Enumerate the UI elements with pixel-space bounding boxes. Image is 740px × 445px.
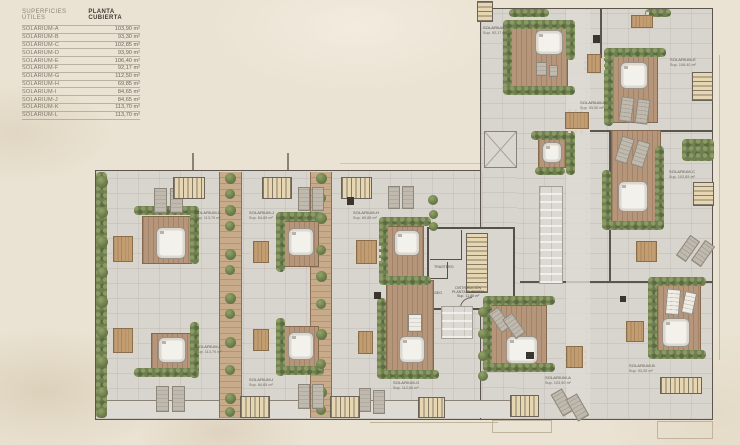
sun-lounger [359, 388, 371, 412]
legend-row: SOLARIUM-D93,90 m² [22, 48, 140, 56]
legend-row-area: 102,85 m² [115, 42, 140, 48]
unit-name: SOLARIUM-F [483, 25, 509, 30]
unit-name: SOLARIUM-C [669, 169, 695, 174]
legend-row-name: SOLARIUM-A [22, 26, 59, 32]
tree-icon [225, 173, 236, 184]
roof-vent [526, 352, 534, 359]
lower-floor-outline [657, 421, 713, 439]
hedge [566, 131, 575, 175]
lower-floor-line [370, 422, 498, 423]
stairs-icon [330, 396, 360, 418]
hedge [377, 370, 439, 379]
hedge [682, 139, 714, 161]
jacuzzi [156, 227, 186, 259]
hedge [602, 170, 611, 226]
skylight [484, 131, 517, 168]
seating-grid [441, 306, 473, 339]
sun-lounger [388, 186, 400, 209]
tree-icon [478, 371, 488, 381]
jacuzzi [158, 337, 186, 363]
tree-icon [478, 329, 488, 339]
dining-table [636, 241, 657, 262]
hedge [535, 167, 565, 175]
hedge [648, 350, 706, 359]
tree-icon [225, 365, 235, 375]
unit-area: Sup. 84,65 m² [249, 216, 274, 221]
tree-icon [316, 359, 326, 369]
seating-grid [539, 186, 563, 284]
legend-row-name: SOLARIUM-B [22, 34, 59, 40]
unit-label-solarium-d: SOLARIUM-DSup. 93,90 m² [580, 101, 606, 110]
tree-icon [97, 327, 108, 338]
dining-table [587, 54, 601, 73]
unit-name: SOLARIUM-E [670, 57, 696, 62]
jacuzzi [542, 142, 562, 163]
legend-row-area: 103,90 m² [115, 26, 140, 32]
legend: SUPERFICIES ÚTILES PLANTA CUBIERTA SOLAR… [22, 9, 140, 120]
hedge [276, 212, 285, 272]
tree-icon [225, 249, 236, 260]
wall-tick [287, 153, 289, 170]
unit-label-solarium-k: SOLARIUM-KSup. 113,70 m² [195, 211, 221, 220]
unit-area: Sup. 69,85 m² [353, 216, 379, 221]
legend-row-area: 69,85 m² [118, 81, 140, 87]
stairs-icon [660, 377, 702, 394]
unit-name: SOLARIUM-I [249, 377, 273, 382]
hedge [377, 298, 386, 378]
unit-label-solarium-j: SOLARIUM-JSup. 84,65 m² [249, 211, 274, 220]
tree-icon [478, 307, 488, 317]
unit-name: SOLARIUM-A [545, 375, 571, 380]
dining-table [113, 328, 133, 353]
hedge [566, 20, 575, 60]
tree-icon [225, 309, 235, 319]
hedge [604, 48, 666, 57]
sun-lounger [373, 390, 385, 414]
tree-icon [316, 329, 327, 340]
hedge [503, 86, 575, 95]
unit-label-solarium-c: SOLARIUM-CSup. 102,85 m² [669, 170, 695, 179]
jacuzzi [399, 336, 425, 363]
dining-table [626, 321, 644, 342]
legend-row-name: SOLARIUM-C [22, 42, 59, 48]
sun-lounger [665, 288, 681, 315]
dining-table [631, 15, 653, 28]
legend-row: SOLARIUM-E106,40 m² [22, 56, 140, 64]
tree-icon [429, 222, 438, 231]
legend-row-name: SOLARIUM-E [22, 58, 59, 64]
tree-icon [97, 387, 108, 398]
stairs-icon [173, 177, 205, 199]
floor-plan-canvas: SUPERFICIES ÚTILES PLANTA CUBIERTA SOLAR… [0, 0, 740, 445]
tree-icon [96, 236, 108, 248]
roof-vent [620, 296, 626, 302]
unit-label-solarium-h: SOLARIUM-HSup. 69,85 m² [353, 211, 379, 220]
legend-row-name: SOLARIUM-G [22, 73, 59, 79]
tree-icon [316, 245, 326, 255]
hedge [483, 363, 555, 372]
legend-row: SOLARIUM-C102,85 m² [22, 41, 140, 49]
tree-icon [478, 351, 488, 361]
jacuzzi [394, 230, 420, 256]
legend-row-name: SOLARIUM-H [22, 81, 59, 87]
tree-icon [225, 189, 235, 199]
legend-row-area: 93,90 m² [118, 50, 140, 56]
unit-area: Sup. 93,90 m² [580, 106, 606, 111]
tree-icon [316, 271, 327, 282]
hedge [503, 20, 575, 29]
tree-icon [97, 267, 108, 278]
legend-row-name: SOLARIUM-K [22, 104, 59, 110]
unit-label-solarium-i: SOLARIUM-ISup. 84,65 m² [249, 378, 273, 387]
legend-row: SOLARIUM-K113,70 m² [22, 103, 140, 111]
legend-title-right: PLANTA CUBIERTA [88, 9, 140, 21]
legend-row-area: 84,65 m² [118, 89, 140, 95]
unit-label-solarium-f: SOLARIUM-FSup. 92,17 m² [483, 26, 509, 35]
hedge [483, 296, 555, 305]
trastero-room [430, 230, 462, 260]
dining-table [253, 241, 269, 263]
unit-area: Sup. 93,30 m² [629, 369, 655, 374]
jacuzzi [506, 336, 538, 364]
unit-area: Sup. 112,50 m² [393, 386, 419, 391]
unit-name: SOLARIUM-B [629, 363, 655, 368]
sun-lounger [408, 314, 422, 332]
dining-table [565, 112, 589, 129]
legend-title-left: SUPERFICIES ÚTILES [22, 9, 80, 21]
unit-label-solarium-b: SOLARIUM-BSup. 93,30 m² [629, 364, 655, 373]
legend-row-name: SOLARIUM-L [22, 112, 58, 118]
stairs-icon [240, 396, 270, 418]
jacuzzi [662, 318, 690, 347]
tree-icon [316, 173, 327, 184]
unit-area: Sup. 102,85 m² [669, 175, 695, 180]
hedge [602, 221, 664, 230]
legend-row: SOLARIUM-A103,90 m² [22, 25, 140, 33]
legend-row: SOLARIUM-G112,50 m² [22, 72, 140, 80]
legend-row: SOLARIUM-L113,70 m² [22, 111, 140, 119]
roof-overhang-line [340, 163, 483, 164]
lower-floor-outline [492, 420, 552, 433]
legend-title: SUPERFICIES ÚTILES PLANTA CUBIERTA [22, 9, 140, 21]
unit-area: Sup. 84,65 m² [249, 383, 273, 388]
legend-row: SOLARIUM-B93,30 m² [22, 33, 140, 41]
legend-row-area: 92,17 m² [118, 65, 140, 71]
wall-tick [192, 153, 194, 170]
tree-icon [316, 299, 326, 309]
sun-lounger [402, 186, 414, 209]
stairs-icon [692, 72, 713, 101]
unit-area: Sup. 113,70 m² [195, 216, 221, 221]
unit-label-solarium-a: SOLARIUM-ASup. 103,90 m² [545, 376, 571, 385]
jacuzzi [288, 332, 314, 360]
dining-table [566, 346, 583, 368]
unit-label-solarium-g: SOLARIUM-GSup. 112,50 m² [393, 381, 419, 390]
unit-area: Sup. 103,90 m² [545, 381, 571, 386]
sun-lounger [312, 187, 324, 211]
legend-row-name: SOLARIUM-D [22, 50, 59, 56]
hedge [604, 48, 613, 126]
sun-lounger [154, 188, 167, 213]
unit-name: SOLARIUM-D [580, 100, 606, 105]
sun-lounger [536, 62, 547, 76]
tree-icon [316, 213, 327, 224]
hedge [379, 276, 431, 285]
interior-wall [600, 9, 602, 58]
roof-vent [347, 197, 354, 205]
tree-icon [225, 337, 236, 348]
legend-row-name: SOLARIUM-J [22, 97, 58, 103]
unit-area: Sup. 113,70 m² [196, 350, 222, 355]
stairs-icon [477, 1, 493, 22]
hedge [509, 9, 549, 17]
stairs-icon [341, 177, 372, 199]
tree-icon [97, 207, 108, 218]
stairs-icon [693, 182, 714, 206]
legend-row-name: SOLARIUM-F [22, 65, 59, 71]
sun-lounger [298, 187, 310, 211]
hedge [655, 146, 664, 228]
legend-row-area: 112,50 m² [115, 73, 140, 79]
unit-area: Sup. 106,40 m² [670, 63, 696, 68]
roof-vent [374, 292, 381, 299]
legend-row-area: 84,65 m² [118, 97, 140, 103]
core-stairs-icon [466, 233, 488, 293]
unit-name: SOLARIUM-L [196, 344, 221, 349]
tree-icon [428, 195, 438, 205]
legend-rows: SOLARIUM-A103,90 m² SOLARIUM-B93,30 m² S… [22, 25, 140, 120]
sun-lounger [172, 386, 185, 412]
legend-row: SOLARIUM-H69,85 m² [22, 80, 140, 88]
tree-icon [225, 393, 236, 404]
hedge [648, 277, 657, 359]
unit-name: SOLARIUM-J [249, 210, 274, 215]
tree-icon [429, 210, 438, 219]
jacuzzi [288, 228, 314, 256]
legend-row-area: 113,70 m² [115, 112, 140, 118]
jacuzzi [618, 181, 648, 212]
tree-icon [96, 356, 108, 368]
unit-area: Sup. 92,17 m² [483, 31, 509, 36]
legend-row-area: 93,30 m² [118, 34, 140, 40]
roof-vent [593, 35, 600, 43]
trastero-label: TRASTERO [434, 265, 454, 269]
tree-icon [97, 408, 107, 418]
stairs-icon [262, 177, 292, 199]
legend-row-area: 106,40 m² [115, 58, 140, 64]
legend-row: SOLARIUM-I84,65 m² [22, 87, 140, 95]
tree-icon [96, 296, 108, 308]
sun-lounger [312, 384, 324, 409]
jacuzzi [535, 30, 563, 55]
legend-row: SOLARIUM-J84,65 m² [22, 95, 140, 103]
boundary-line [719, 55, 720, 360]
dining-table [113, 236, 133, 262]
tree-icon [225, 265, 235, 275]
hedge [648, 277, 706, 286]
stairs-icon [510, 395, 539, 417]
sun-lounger [549, 65, 558, 77]
legend-row-name: SOLARIUM-I [22, 89, 57, 95]
unit-name: SOLARIUM-H [353, 210, 379, 215]
unit-name: SOLARIUM-G [393, 380, 419, 385]
sun-lounger [298, 384, 310, 409]
tree-icon [225, 221, 235, 231]
jacuzzi [620, 62, 648, 89]
dining-table [358, 331, 373, 354]
unit-label-solarium-l: SOLARIUM-LSup. 113,70 m² [196, 345, 222, 354]
dining-table [356, 240, 377, 264]
unit-label-solarium-e: SOLARIUM-ESup. 106,40 m² [670, 58, 696, 67]
legend-row: SOLARIUM-F92,17 m² [22, 64, 140, 72]
dining-table [253, 329, 269, 351]
tree-icon [225, 293, 236, 304]
tree-icon [225, 205, 236, 216]
sun-lounger [156, 386, 169, 412]
tree-icon [96, 176, 108, 188]
tree-icon [225, 407, 235, 417]
stairs-icon [418, 397, 445, 418]
hedge [134, 368, 198, 377]
unit-name: SOLARIUM-K [195, 210, 221, 215]
legend-row-area: 113,70 m² [115, 104, 140, 110]
